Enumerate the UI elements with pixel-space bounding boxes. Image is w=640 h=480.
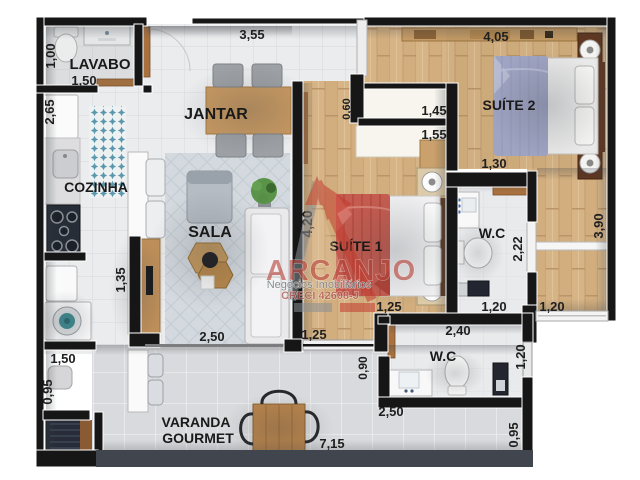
- svg-text:2,65: 2,65: [42, 99, 57, 124]
- svg-text:SUÍTE 2: SUÍTE 2: [483, 97, 536, 113]
- svg-text:7,15: 7,15: [319, 436, 344, 451]
- svg-text:1,50: 1,50: [50, 351, 75, 366]
- svg-text:2,50: 2,50: [199, 329, 224, 344]
- svg-text:0,90: 0,90: [356, 356, 370, 380]
- svg-text:3,90: 3,90: [591, 213, 606, 238]
- svg-text:1,45: 1,45: [421, 103, 446, 118]
- svg-text:4,05: 4,05: [483, 29, 508, 44]
- svg-text:W.C: W.C: [479, 225, 505, 241]
- svg-text:0,60: 0,60: [341, 98, 353, 119]
- svg-text:W.C: W.C: [430, 348, 456, 364]
- svg-text:COZINHA: COZINHA: [64, 179, 128, 195]
- svg-text:1,30: 1,30: [481, 156, 506, 171]
- svg-text:3,55: 3,55: [239, 27, 264, 42]
- svg-text:1,20: 1,20: [481, 299, 506, 314]
- svg-text:0,95: 0,95: [506, 422, 521, 447]
- svg-text:VARANDA: VARANDA: [162, 414, 231, 430]
- svg-text:1,35: 1,35: [113, 267, 128, 292]
- svg-text:1,55: 1,55: [421, 127, 446, 142]
- svg-text:GOURMET: GOURMET: [162, 430, 234, 446]
- svg-text:1,25: 1,25: [376, 299, 401, 314]
- svg-text:1,50: 1,50: [71, 73, 96, 88]
- svg-text:CRECI 42608-J: CRECI 42608-J: [281, 290, 359, 302]
- svg-text:2,50: 2,50: [378, 404, 403, 419]
- svg-text:0,95: 0,95: [40, 379, 55, 404]
- svg-text:SUÍTE 1: SUÍTE 1: [330, 238, 383, 254]
- svg-text:2,22: 2,22: [510, 236, 525, 261]
- svg-text:1,20: 1,20: [539, 299, 564, 314]
- svg-text:1,20: 1,20: [513, 344, 528, 369]
- svg-text:LAVABO: LAVABO: [69, 56, 130, 73]
- svg-text:JANTAR: JANTAR: [184, 106, 248, 123]
- svg-text:1,00: 1,00: [43, 43, 58, 68]
- svg-text:1,25: 1,25: [301, 327, 326, 342]
- svg-text:2,40: 2,40: [445, 323, 470, 338]
- svg-text:SALA: SALA: [188, 224, 232, 241]
